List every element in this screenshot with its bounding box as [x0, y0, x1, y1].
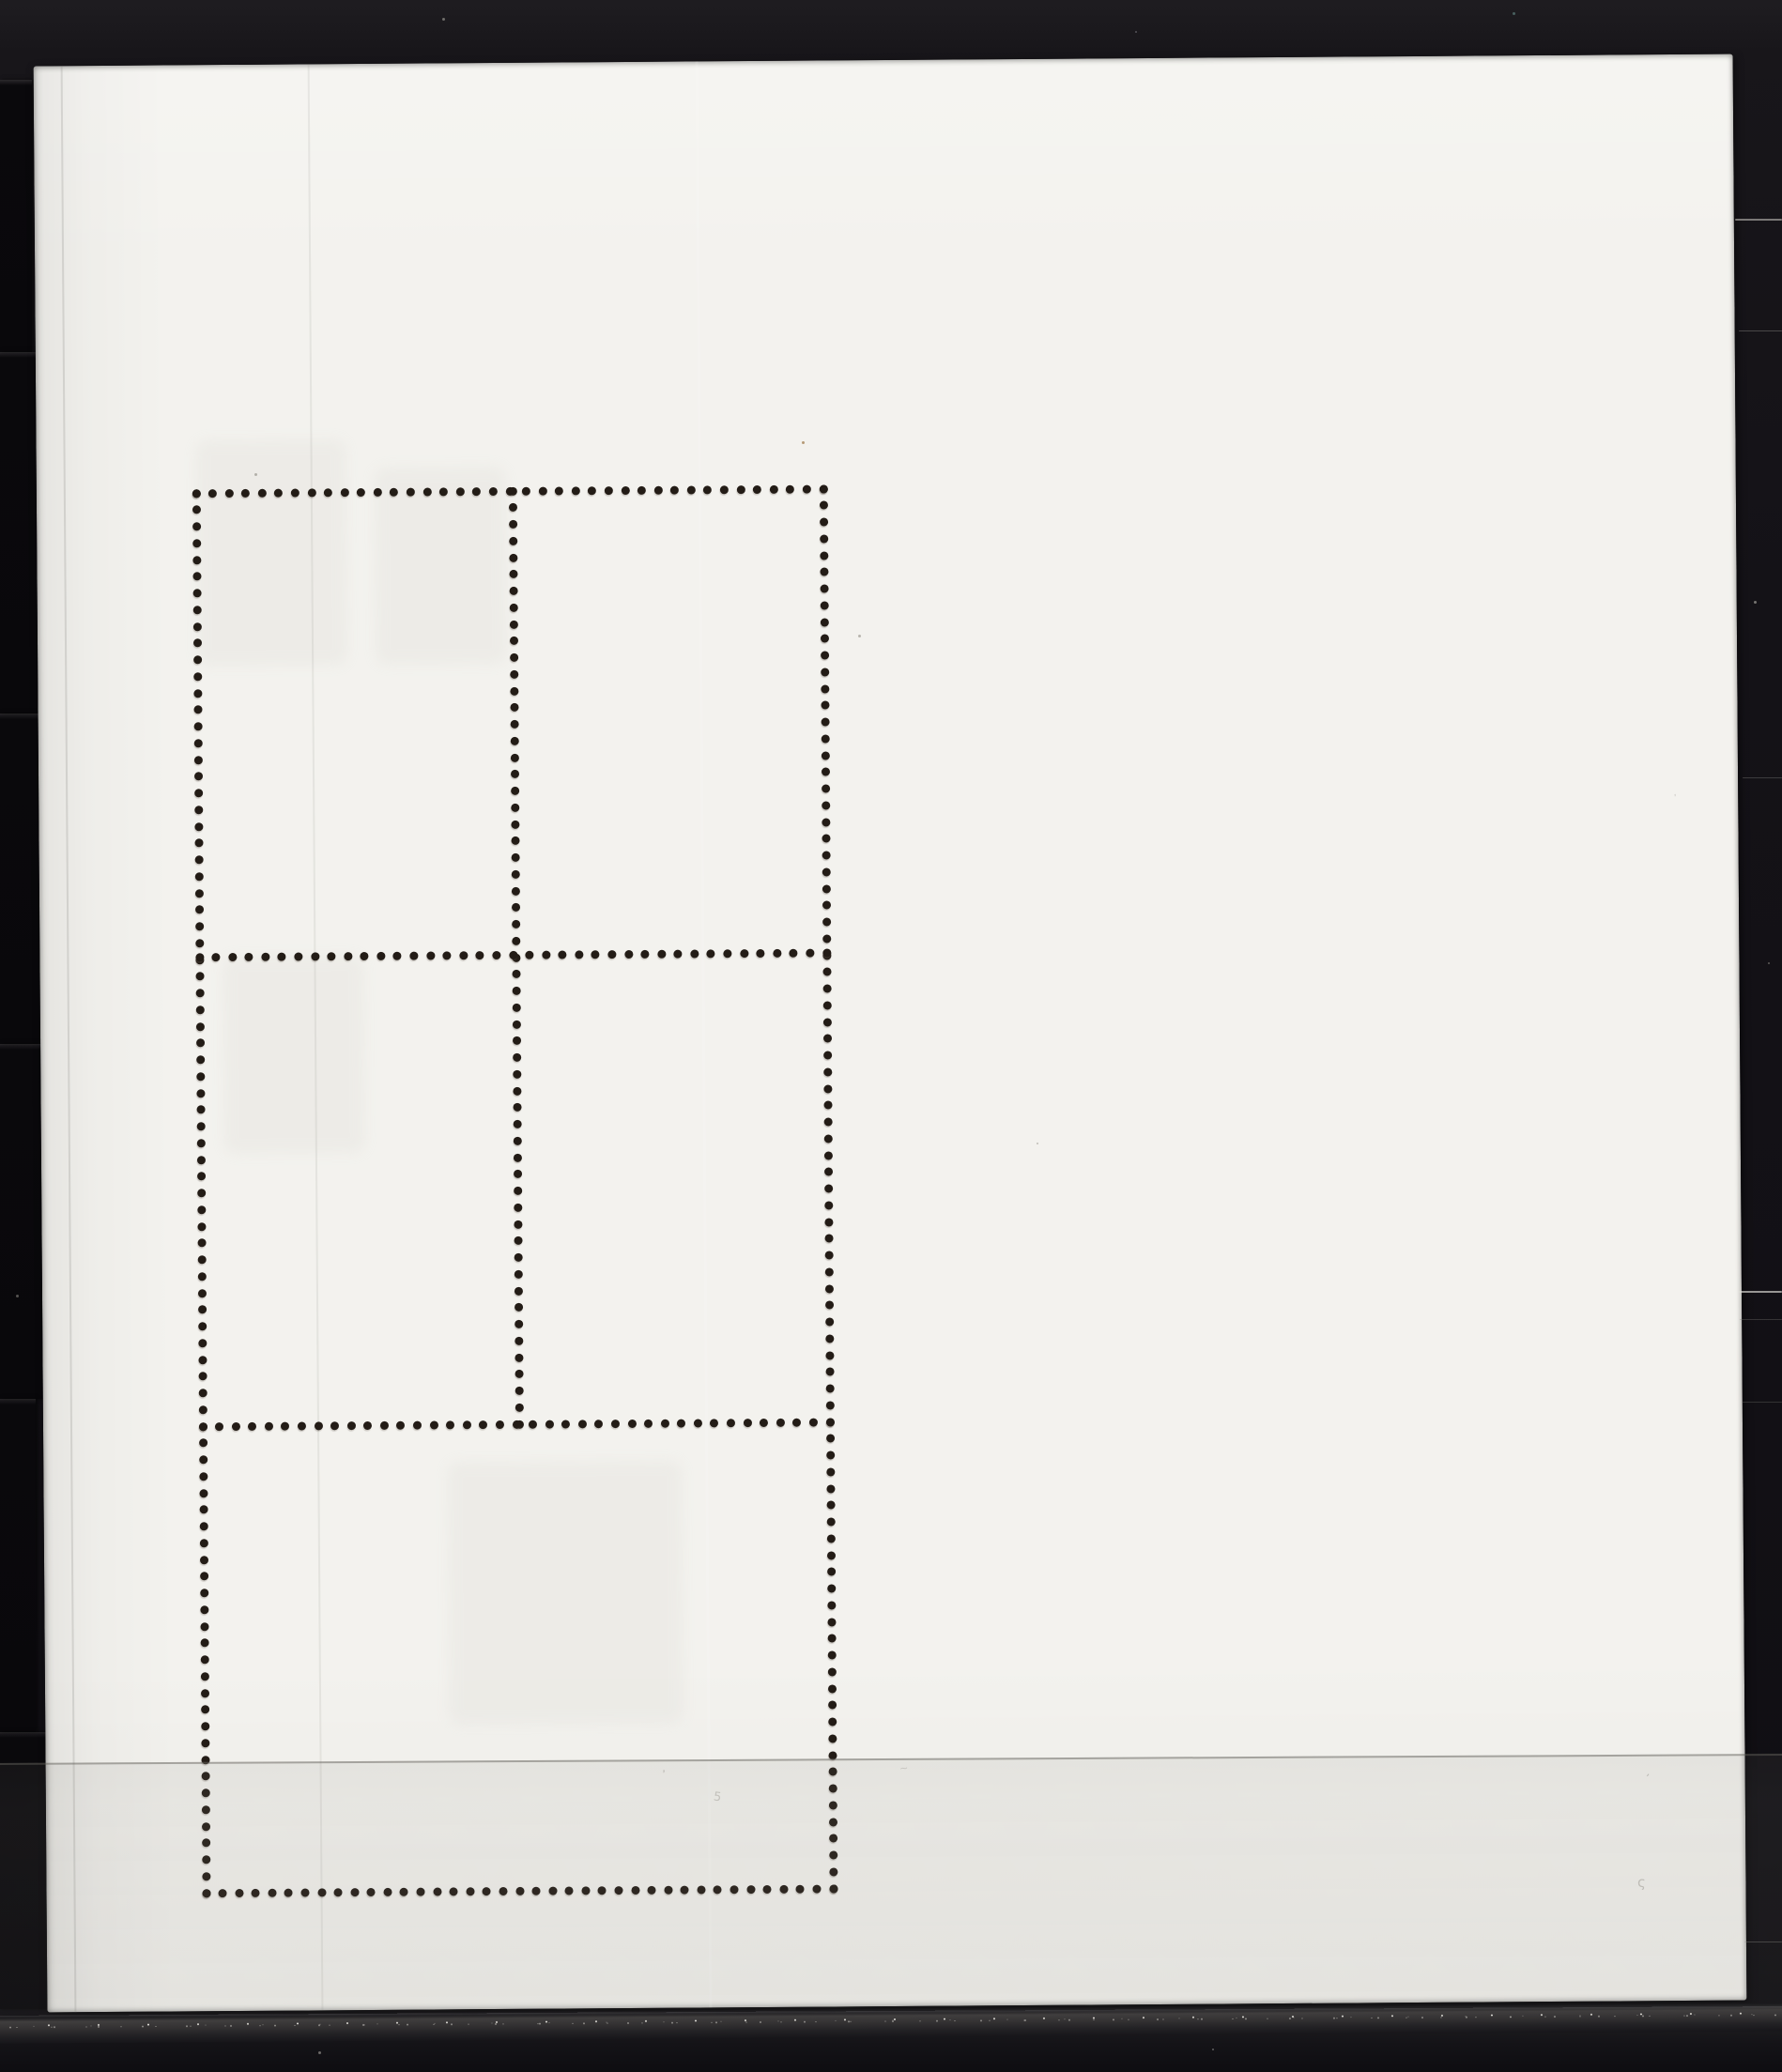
perforation-hole	[193, 722, 202, 730]
perforation-hole	[510, 737, 518, 745]
perforation-hole	[330, 1421, 339, 1430]
perforation-hole	[822, 948, 831, 957]
dust-speck	[442, 18, 445, 21]
perforation-hole	[826, 1517, 835, 1526]
perforation-hole	[822, 934, 831, 943]
perforation-hole	[720, 485, 729, 494]
perforation-hole	[443, 951, 452, 959]
perforation-hole	[513, 1120, 521, 1128]
margin-scratch	[1739, 1291, 1782, 1293]
perforation-hole	[200, 1638, 208, 1647]
perforation-hole	[511, 886, 519, 895]
perforation-hole	[806, 948, 814, 957]
perforation-hole	[196, 1156, 205, 1164]
perforation-hole	[657, 949, 666, 958]
perforation-hole	[828, 1701, 837, 1710]
perforation-hole	[198, 1405, 207, 1414]
perforation-hole	[825, 1317, 834, 1326]
perforation-hole	[195, 953, 204, 961]
perforation-hole	[192, 505, 200, 514]
perforation-hole	[510, 653, 518, 662]
perforation-hole	[821, 668, 829, 676]
perforation-hole	[825, 1384, 834, 1392]
dust-speck	[1754, 601, 1757, 604]
perforation-hole	[561, 1420, 570, 1428]
perforation-hole	[413, 1420, 422, 1429]
perforation-hole	[512, 920, 520, 929]
perforation-hole	[513, 1070, 521, 1079]
pocket-strip-edge	[0, 1399, 36, 1732]
perforation-hole	[374, 487, 382, 496]
perforation-hole	[677, 1419, 685, 1427]
perforation-hole	[512, 987, 520, 995]
perforation-hole	[514, 1220, 522, 1228]
perforation-hole	[509, 637, 517, 645]
margin-scratch	[1744, 1942, 1782, 1942]
perforation-hole	[200, 1572, 208, 1580]
dust-speck	[254, 473, 257, 476]
perforation-hole	[194, 855, 203, 864]
perforation-hole	[819, 484, 827, 493]
perforation-hole	[324, 488, 332, 497]
perforation-hole	[514, 1253, 522, 1262]
pocket-strip-edge	[0, 1044, 44, 1399]
perforation-hole	[459, 951, 468, 959]
perforation-hole	[605, 486, 613, 495]
perforation-hole	[820, 534, 828, 543]
perforation-hole	[770, 484, 778, 493]
perforation-hole	[508, 503, 516, 512]
perforation-hole	[640, 949, 649, 958]
perforation-hole	[529, 1420, 537, 1428]
perforation-hole	[199, 1438, 207, 1447]
perforation-hole	[248, 1421, 256, 1430]
perforation-hole	[822, 884, 830, 893]
perforation-hole	[824, 1184, 833, 1192]
perforation-hole	[822, 867, 830, 876]
perforation-hole	[245, 952, 253, 960]
perforation-hole	[644, 1419, 653, 1427]
perforation-hole	[311, 952, 319, 960]
perforation-hole	[363, 1420, 372, 1429]
perforation-hole	[198, 1389, 207, 1397]
perforation-hole	[492, 950, 500, 959]
perforation-hole	[241, 488, 250, 497]
perforation-hole	[707, 949, 715, 958]
perforation-hole	[195, 922, 204, 930]
perforation-hole	[820, 551, 828, 560]
perforation-hole	[291, 488, 300, 497]
perforation-hole	[426, 951, 435, 959]
perforation-hole	[825, 1418, 834, 1426]
perforation-hole	[823, 1151, 832, 1159]
perforation-hole	[393, 951, 402, 959]
perforation-hole	[823, 1035, 832, 1043]
perforation-hole	[376, 951, 385, 959]
perforation-hole	[476, 951, 484, 959]
dust-speck	[1513, 12, 1515, 15]
perforation-hole	[505, 486, 514, 495]
perforation-hole	[341, 488, 349, 497]
perforation-hole	[224, 488, 233, 497]
perforation-hole	[197, 1289, 206, 1297]
perforation-hole	[525, 950, 533, 959]
perforation-hole	[826, 1501, 835, 1510]
perforation-hole	[515, 1337, 523, 1345]
margin-scratch	[1739, 330, 1782, 331]
perforation-hole	[512, 970, 520, 978]
perforation-hole	[194, 889, 203, 898]
perforation-hole	[208, 489, 217, 498]
perforation-hole	[792, 1418, 801, 1426]
perforation-hole	[199, 1505, 207, 1513]
perforation-hole	[347, 1421, 356, 1430]
perforation-hole	[820, 584, 828, 592]
perforation-hole	[514, 1236, 522, 1245]
perforation-hole	[195, 989, 204, 997]
dust-speck	[16, 1295, 19, 1297]
perforation-hole	[197, 1238, 206, 1247]
pencil-mark: ~	[899, 1763, 909, 1774]
perforation-hole	[690, 949, 699, 958]
perforation-hole	[511, 903, 519, 912]
perforation-hole	[753, 484, 761, 493]
perforation-hole	[278, 952, 286, 960]
perforation-hole	[824, 1284, 833, 1293]
perforation-hole	[822, 1018, 831, 1026]
perforation-hole	[197, 1272, 206, 1281]
stamp-cell-top-left	[196, 491, 516, 957]
perforation-hole	[513, 1137, 521, 1145]
perforation-hole	[820, 618, 828, 626]
perforation-hole	[760, 1418, 768, 1426]
perforation-hole	[409, 951, 418, 959]
perforation-hole	[727, 1419, 735, 1427]
perforation-hole	[826, 1484, 835, 1493]
perforation-hole	[744, 1419, 752, 1427]
perforation-hole	[197, 1222, 206, 1231]
perforation-hole	[826, 1450, 835, 1459]
perforation-hole	[591, 950, 600, 959]
perforation-hole	[463, 1420, 471, 1429]
perforation-hole	[509, 587, 517, 595]
pocket-strip-edge	[0, 714, 38, 1044]
perforation-hole	[821, 717, 829, 726]
margin-scratch	[1735, 219, 1782, 221]
perforation-hole	[509, 537, 517, 545]
perforation-hole	[344, 952, 352, 960]
perforation-hole	[195, 1005, 204, 1014]
pocket-strip-edge	[0, 80, 32, 352]
perforation-hole	[820, 568, 828, 576]
margin-scratch	[1740, 1319, 1782, 1320]
perforation-hole	[828, 1734, 837, 1742]
perforation-hole	[515, 1404, 523, 1412]
stockbook-page-photo: ’5~’ς’	[0, 0, 1782, 2072]
perforation-hole	[821, 684, 829, 693]
margin-scratch	[1743, 777, 1782, 778]
perforation-hole	[827, 1650, 836, 1659]
perforation-hole	[198, 1305, 207, 1313]
perforation-hole	[509, 570, 517, 578]
perforation-hole	[545, 1420, 554, 1428]
perforation-hole	[509, 553, 517, 561]
perforation-hole	[822, 784, 830, 792]
perforation-hole	[511, 870, 519, 879]
perforation-hole	[198, 1339, 207, 1347]
perforation-hole	[200, 1672, 208, 1681]
perforation-hole	[821, 701, 829, 710]
stamp-cell-middle-right	[515, 952, 830, 1423]
perforation-hole	[194, 806, 203, 814]
perforation-hole	[509, 520, 517, 529]
perforation-hole	[661, 1419, 669, 1427]
perforation-hole	[192, 522, 201, 530]
perforation-hole	[196, 1122, 205, 1130]
perforation-hole	[827, 1618, 836, 1626]
perforation-hole	[193, 756, 202, 764]
perforation-hole	[194, 822, 203, 831]
perforation-hole	[456, 487, 465, 496]
dust-speck	[802, 441, 805, 444]
perforation-hole	[232, 1421, 240, 1430]
perforation-hole	[828, 1717, 837, 1726]
perforation-hole	[809, 1418, 818, 1426]
perforation-hole	[200, 1622, 208, 1631]
perforation-hole	[827, 1684, 836, 1693]
perforation-hole	[514, 1270, 522, 1279]
perforation-hole	[200, 1689, 208, 1697]
glassine-strip-edge	[0, 1754, 1782, 2016]
perforation-hole	[736, 485, 745, 494]
perforation-hole	[819, 501, 827, 510]
perforation-hole	[199, 1489, 207, 1497]
paper-crease-layer	[34, 54, 1733, 67]
perforation-hole	[193, 655, 202, 664]
perforation-hole	[826, 1467, 835, 1476]
perforation-hole	[192, 622, 201, 631]
perforation-hole	[674, 949, 683, 958]
perforation-hole	[514, 1286, 522, 1295]
perforation-hole	[513, 1053, 521, 1062]
perforation-hole	[511, 787, 519, 795]
perforation-hole	[215, 1422, 223, 1431]
perforation-hole	[198, 1372, 207, 1380]
perforation-hole	[228, 952, 237, 960]
perforation-hole	[513, 1153, 521, 1161]
perforation-hole	[509, 950, 517, 959]
perforation-hole	[198, 1422, 207, 1431]
perforation-hole	[822, 1001, 831, 1009]
perforation-hole	[195, 905, 204, 913]
perforation-hole	[588, 486, 596, 495]
design-showthrough-layer	[34, 54, 1733, 67]
perforation-hole	[407, 487, 415, 496]
perforation-hole	[515, 1353, 523, 1361]
perforation-hole	[265, 1421, 273, 1430]
perforation-hole	[196, 1139, 205, 1147]
perforation-hole	[522, 486, 530, 495]
perforation-hole	[211, 953, 220, 961]
perforation-hole	[827, 1667, 836, 1676]
perforation-hole	[430, 1420, 438, 1429]
perforation-hole	[542, 950, 550, 959]
perforation-hole	[624, 949, 633, 958]
perforation-hole	[510, 703, 518, 712]
perforation-hole	[195, 1022, 204, 1031]
perforation-hole	[513, 1036, 521, 1045]
perforation-hole	[825, 1334, 834, 1343]
perforation-hole	[512, 1004, 520, 1012]
perforation-hole	[825, 1401, 834, 1409]
perforation-hole	[515, 1303, 523, 1312]
perforation-hole	[826, 1534, 835, 1542]
perforation-hole	[821, 734, 829, 743]
perforation-hole	[192, 539, 201, 547]
perforation-hole	[823, 1134, 832, 1143]
perforation-hole	[298, 1421, 306, 1430]
perforation-hole	[199, 1556, 207, 1564]
stamp-cells-layer	[34, 54, 1733, 67]
perforation-hole	[824, 1218, 833, 1226]
perforation-hole	[825, 1301, 834, 1310]
perforation-hole	[510, 686, 518, 695]
perforation-hole	[803, 484, 811, 493]
perforation-hole	[199, 1522, 207, 1530]
perforation-hole	[822, 818, 830, 826]
perforation-hole	[827, 1635, 836, 1643]
perforation-hole	[196, 1055, 205, 1064]
perforation-hole	[575, 950, 583, 959]
perforation-hole	[703, 485, 712, 494]
perforation-hole	[513, 1086, 521, 1095]
perforation-hole	[511, 820, 519, 828]
perforation-hole	[201, 1705, 209, 1713]
perforation-hole	[361, 951, 369, 959]
perforation-hole	[821, 768, 829, 776]
perforation-hole	[514, 1170, 522, 1178]
perforation-hole	[194, 789, 203, 797]
perforation-hole	[200, 1655, 208, 1664]
perforation-hole	[825, 1351, 834, 1359]
perforation-hole	[821, 651, 829, 659]
perforation-hole	[824, 1235, 833, 1243]
perforation-hole	[396, 1420, 405, 1429]
perforation-hole	[773, 948, 781, 957]
perforation-hole	[594, 1420, 603, 1428]
perforation-hole	[196, 1089, 205, 1097]
perforation-hole	[823, 1117, 832, 1126]
perforation-hole	[687, 485, 696, 494]
perforation-hole	[790, 948, 798, 957]
perforation-hole	[822, 968, 831, 976]
perforation-hole	[555, 486, 563, 495]
perforation-hole	[511, 804, 519, 812]
perforation-hole	[822, 917, 831, 926]
dust-speck	[858, 635, 861, 637]
perforation-hole	[192, 489, 200, 498]
perforation-hole	[515, 1370, 523, 1378]
perforation-hole	[512, 1020, 520, 1028]
perforation-hole	[611, 1420, 620, 1428]
perforation-hole	[261, 952, 269, 960]
stamp-cell-middle-left	[199, 955, 519, 1426]
perforation-hole	[496, 1420, 504, 1428]
perforation-hole	[197, 1189, 206, 1197]
perforation-hole	[786, 484, 794, 493]
perforation-hole	[195, 972, 204, 980]
perforation-hole	[823, 1084, 832, 1093]
perforation-hole	[193, 705, 202, 714]
perforation-hole	[510, 770, 518, 778]
perforation-hole	[694, 1419, 702, 1427]
perforation-hole	[515, 1387, 523, 1395]
perforation-hole	[509, 604, 517, 612]
perforation-hole	[198, 1322, 207, 1330]
perforation-hole	[472, 487, 481, 496]
perforation-hole	[327, 952, 335, 960]
perforation-hole	[740, 949, 748, 958]
perforation-hole	[776, 1418, 785, 1426]
perforation-hole	[559, 950, 567, 959]
perforation-hole	[201, 1739, 209, 1747]
perforation-hole	[822, 835, 830, 843]
perforation-hole	[196, 1038, 205, 1047]
perforation-hole	[307, 488, 315, 497]
dust-speck	[1768, 962, 1770, 964]
perforation-hole	[821, 751, 829, 760]
perforation-hole	[390, 487, 398, 496]
perforation-hole	[439, 487, 448, 496]
perforation-hole	[512, 937, 520, 945]
perforation-hole	[513, 1103, 521, 1112]
perforation-hole	[827, 1568, 836, 1576]
perforation-hole	[196, 1105, 205, 1113]
perforation-hole	[479, 1420, 487, 1429]
perforation-hole	[512, 1420, 520, 1428]
perforation-hole	[822, 984, 831, 992]
dust-speck	[318, 2051, 321, 2054]
perforation-hole	[514, 1204, 522, 1212]
perforation-hole	[201, 1722, 209, 1730]
perforation-hole	[607, 950, 616, 959]
perforation-hole	[200, 1589, 208, 1597]
perforation-hole	[827, 1584, 836, 1592]
perforation-hole	[193, 772, 202, 780]
perforation-hole	[357, 487, 365, 496]
perforation-hole	[199, 1455, 207, 1464]
perforation-hole	[820, 517, 828, 526]
perforation-hole	[824, 1201, 833, 1209]
perforation-hole	[281, 1421, 289, 1430]
perforation-hole	[258, 488, 267, 497]
perforation-hole	[723, 949, 731, 958]
perforation-hole	[489, 486, 498, 495]
perforation-hole	[192, 556, 201, 564]
perforation-hole	[194, 872, 203, 881]
perforation-hole	[638, 485, 646, 494]
perforation-hole	[422, 487, 431, 496]
perforation-hole	[192, 572, 201, 580]
perforation-hole	[194, 838, 203, 847]
perforation-hole	[515, 1320, 523, 1328]
perforation-hole	[824, 1251, 833, 1259]
perforation-hole	[670, 485, 679, 494]
perforation-hole	[578, 1420, 587, 1428]
perforation-hole	[197, 1255, 206, 1264]
perforation-hole	[621, 485, 629, 494]
stamp-cell-top-right	[513, 488, 827, 954]
